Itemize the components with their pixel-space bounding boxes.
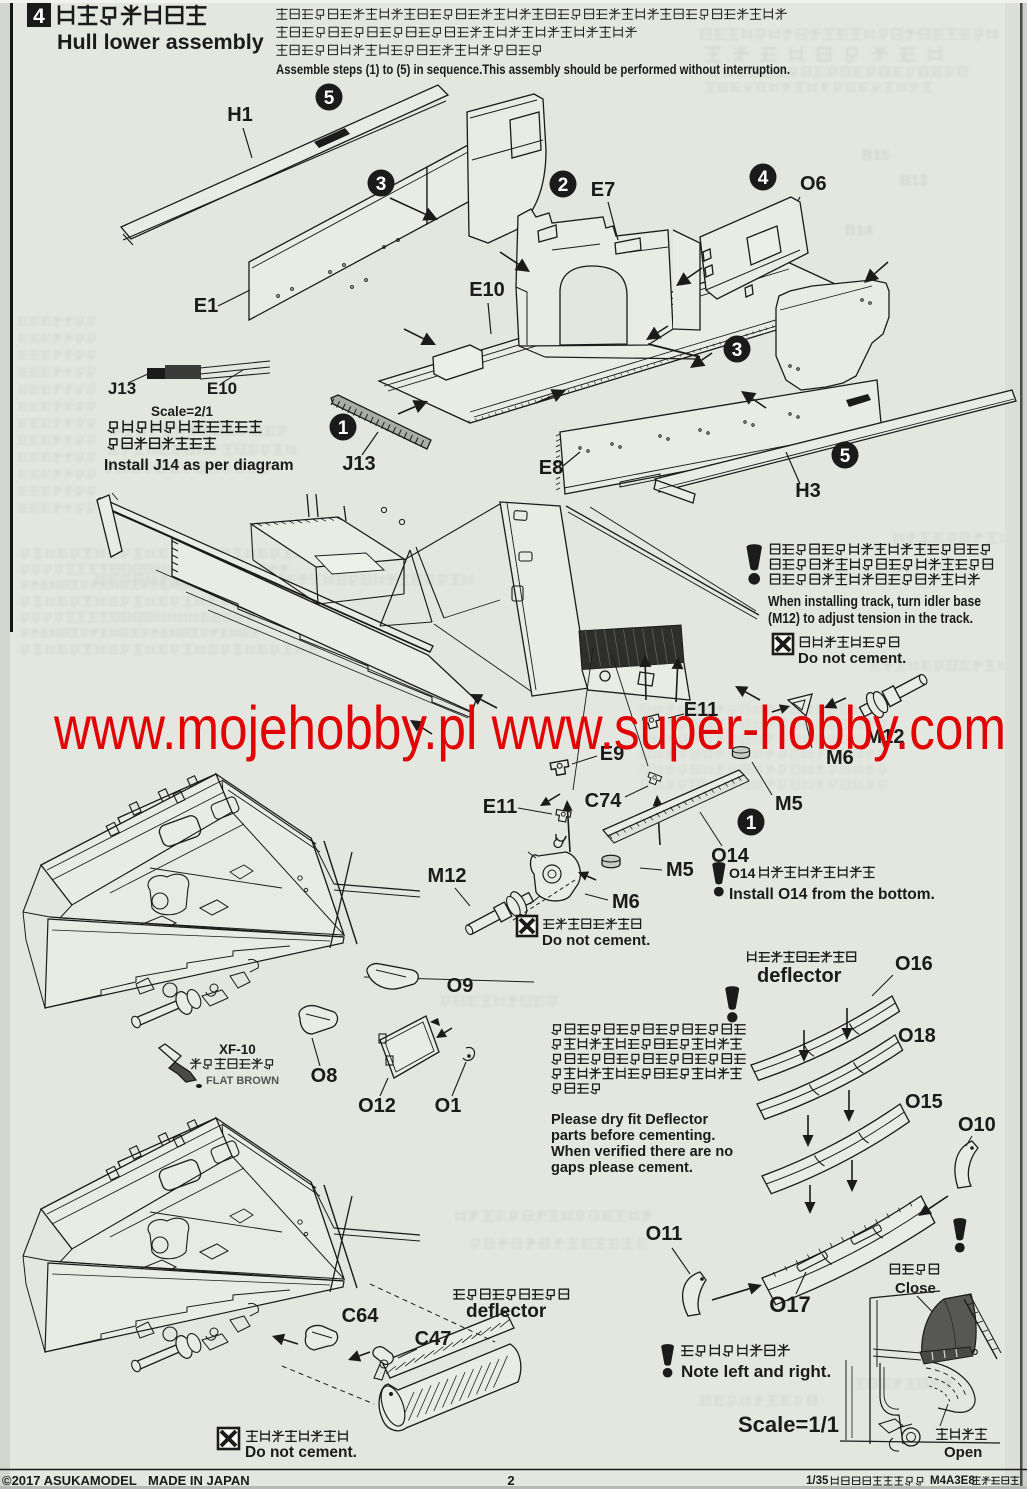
svg-text:www.mojehobby.pl www.super-hob: www.mojehobby.pl www.super-hobby.com xyxy=(53,694,1006,762)
svg-text:O9: O9 xyxy=(447,975,474,997)
svg-text:©2017 ASUKAMODEL: ©2017 ASUKAMODEL xyxy=(2,1473,137,1488)
svg-text:parts before cementing.: parts before cementing. xyxy=(551,1128,715,1144)
svg-text:O10: O10 xyxy=(958,1114,996,1136)
svg-text:O1: O1 xyxy=(435,1095,462,1117)
svg-text:2: 2 xyxy=(558,175,569,196)
svg-text:Do not cement.: Do not cement. xyxy=(542,932,650,949)
svg-text:M5: M5 xyxy=(775,793,803,815)
svg-text:Assemble steps (1) to (5) in s: Assemble steps (1) to (5) in sequence.Th… xyxy=(276,62,790,77)
svg-text:M12: M12 xyxy=(428,865,467,887)
svg-text:H1: H1 xyxy=(227,104,253,126)
svg-text:E10: E10 xyxy=(207,379,237,398)
svg-text:O12: O12 xyxy=(358,1095,396,1117)
svg-text:M6: M6 xyxy=(612,891,640,913)
svg-text:E10: E10 xyxy=(469,279,505,301)
svg-text:2: 2 xyxy=(507,1473,514,1488)
svg-text:E11: E11 xyxy=(483,796,517,818)
svg-text:1: 1 xyxy=(338,418,349,439)
svg-text:B14: B14 xyxy=(845,222,873,239)
svg-text:M4A3E8: M4A3E8 xyxy=(930,1475,975,1487)
svg-text:Install O14 from the bottom.: Install O14 from the bottom. xyxy=(729,886,935,903)
svg-text:3: 3 xyxy=(732,340,743,361)
svg-text:5: 5 xyxy=(840,446,851,467)
svg-text:Scale=1/1: Scale=1/1 xyxy=(738,1412,839,1437)
svg-text:4: 4 xyxy=(33,5,45,28)
svg-text:Scale=2/1: Scale=2/1 xyxy=(151,404,213,419)
svg-text:Note left and right.: Note left and right. xyxy=(681,1362,831,1381)
svg-text:1/35: 1/35 xyxy=(806,1475,829,1487)
svg-text:O18: O18 xyxy=(898,1025,936,1047)
svg-text:Hull lower assembly: Hull lower assembly xyxy=(57,30,264,54)
svg-text:When installing track, turn id: When installing track, turn idler base xyxy=(768,594,981,610)
svg-text:C47: C47 xyxy=(415,1328,452,1350)
svg-text:J13: J13 xyxy=(342,453,375,475)
svg-text:B15: B15 xyxy=(862,147,890,164)
svg-text:E8: E8 xyxy=(539,457,563,479)
svg-text:C64: C64 xyxy=(342,1305,380,1327)
svg-text:When verified there are no: When verified there are no xyxy=(551,1144,733,1160)
svg-text:M5: M5 xyxy=(666,859,694,881)
svg-text:O15: O15 xyxy=(905,1091,943,1113)
svg-text:E1: E1 xyxy=(194,295,218,317)
svg-text:Do not cement.: Do not cement. xyxy=(798,650,906,667)
svg-text:O17: O17 xyxy=(769,1292,811,1317)
svg-text:5: 5 xyxy=(324,88,335,109)
svg-text:deflector: deflector xyxy=(757,965,842,987)
svg-text:3: 3 xyxy=(376,174,387,195)
svg-text:O6: O6 xyxy=(800,173,827,195)
svg-text:Open: Open xyxy=(944,1444,982,1461)
svg-text:gaps please cement.: gaps please cement. xyxy=(551,1160,693,1176)
svg-text:4: 4 xyxy=(758,168,769,189)
svg-text:O16: O16 xyxy=(895,953,933,975)
svg-text:deflector: deflector xyxy=(466,1301,547,1322)
svg-text:C74: C74 xyxy=(585,790,623,812)
svg-text:O14: O14 xyxy=(729,865,756,881)
svg-text:O8: O8 xyxy=(311,1065,338,1087)
svg-text:J13: J13 xyxy=(108,379,136,398)
svg-text:(M12) to adjust tension in the: (M12) to adjust tension in the track. xyxy=(768,611,973,627)
svg-text:Do not cement.: Do not cement. xyxy=(245,1444,357,1461)
svg-text:1: 1 xyxy=(746,813,757,834)
svg-text:FLAT BROWN: FLAT BROWN xyxy=(206,1075,279,1087)
svg-text:MADE IN JAPAN: MADE IN JAPAN xyxy=(148,1473,250,1488)
svg-text:B13: B13 xyxy=(900,172,928,189)
svg-text:XF-10: XF-10 xyxy=(219,1042,256,1057)
svg-text:E7: E7 xyxy=(591,179,615,201)
svg-text:O11: O11 xyxy=(646,1223,683,1245)
svg-text:Install J14 as per diagram: Install J14 as per diagram xyxy=(104,457,294,474)
svg-text:Please dry fit Deflector: Please dry fit Deflector xyxy=(551,1112,708,1128)
